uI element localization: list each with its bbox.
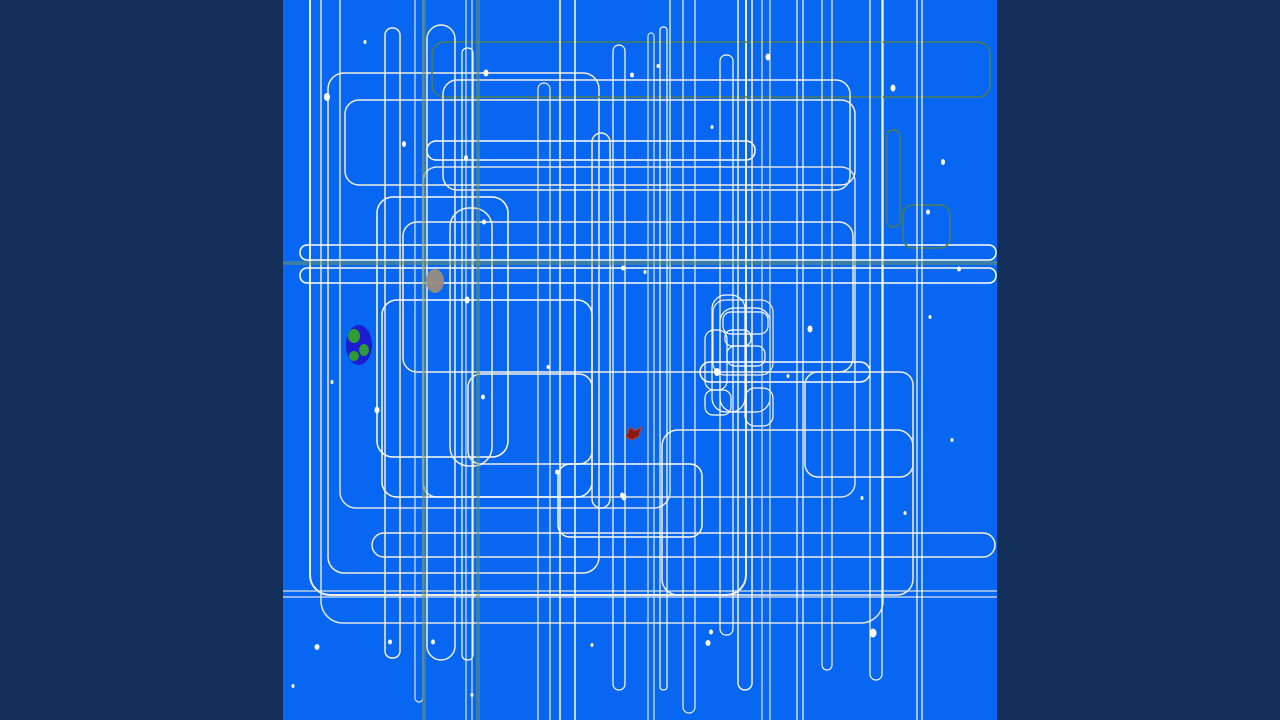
star-dot bbox=[644, 270, 647, 274]
star-dot bbox=[555, 470, 559, 475]
star-dot bbox=[464, 155, 468, 161]
star-dot bbox=[657, 64, 660, 68]
star-dot bbox=[402, 141, 406, 147]
star-dot bbox=[388, 640, 392, 645]
star-dot bbox=[331, 380, 334, 384]
earth-continent bbox=[359, 344, 369, 356]
earth-continent bbox=[349, 351, 359, 361]
star-dot bbox=[621, 266, 625, 271]
blue-square bbox=[283, 0, 997, 720]
star-dot bbox=[547, 365, 550, 369]
star-dot bbox=[431, 640, 435, 645]
star-dot bbox=[375, 407, 380, 414]
star-dot bbox=[957, 267, 961, 272]
star-dot bbox=[471, 693, 474, 697]
earth-planet bbox=[346, 325, 372, 365]
star-dot bbox=[714, 368, 720, 376]
star-dot bbox=[929, 315, 932, 319]
star-dot bbox=[482, 220, 486, 225]
star-dot bbox=[766, 54, 771, 61]
star-dot bbox=[709, 630, 713, 635]
star-dot bbox=[787, 374, 790, 378]
star-dot bbox=[951, 438, 954, 442]
earth-continent bbox=[348, 329, 360, 343]
star-dot bbox=[484, 70, 489, 77]
star-dot bbox=[630, 73, 634, 78]
star-dot bbox=[292, 684, 295, 688]
star-dot bbox=[315, 644, 320, 650]
star-dot bbox=[861, 496, 864, 500]
star-dot bbox=[926, 210, 930, 215]
star-dot bbox=[891, 85, 896, 92]
star-dot bbox=[870, 629, 877, 638]
star-dot bbox=[324, 93, 330, 101]
star-dot bbox=[808, 326, 813, 333]
star-dot bbox=[711, 125, 714, 129]
album-art bbox=[0, 0, 1280, 720]
star-dot bbox=[591, 643, 594, 647]
star-dot bbox=[706, 640, 711, 646]
moon-blob bbox=[426, 269, 444, 293]
star-dot bbox=[465, 297, 470, 304]
star-dot bbox=[904, 511, 907, 515]
star-dot bbox=[622, 494, 627, 501]
star-dot bbox=[481, 395, 485, 400]
artwork-canvas bbox=[0, 0, 1280, 720]
star-dot bbox=[941, 159, 945, 165]
star-dot bbox=[364, 40, 367, 44]
